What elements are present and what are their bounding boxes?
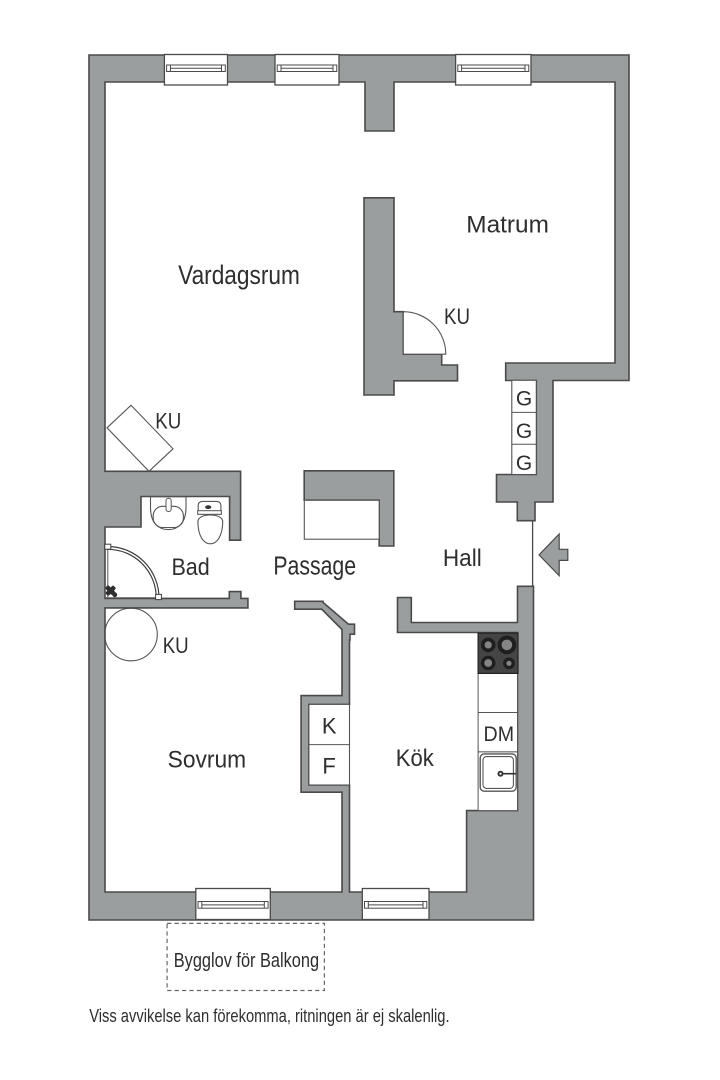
svg-text:K: K — [322, 713, 337, 738]
svg-text:Passage: Passage — [273, 553, 356, 581]
svg-text:KU: KU — [444, 304, 470, 329]
svg-text:Vardagsrum: Vardagsrum — [178, 260, 300, 290]
svg-text:Sovrum: Sovrum — [168, 747, 247, 774]
svg-text:G: G — [516, 420, 532, 443]
svg-text:G: G — [516, 452, 532, 475]
svg-text:Viss avvikelse kan förekomma,: Viss avvikelse kan förekomma, ritningen … — [89, 1005, 449, 1026]
svg-text:KU: KU — [155, 408, 181, 433]
svg-text:Bad: Bad — [171, 554, 209, 581]
svg-text:F: F — [322, 753, 335, 778]
svg-text:Hall: Hall — [443, 545, 482, 572]
svg-text:KU: KU — [163, 633, 189, 658]
svg-text:Matrum: Matrum — [466, 212, 549, 239]
svg-text:Kök: Kök — [396, 745, 435, 772]
svg-text:Bygglov för Balkong: Bygglov för Balkong — [174, 949, 319, 972]
svg-text:DM: DM — [484, 723, 515, 746]
svg-text:G: G — [516, 388, 532, 411]
